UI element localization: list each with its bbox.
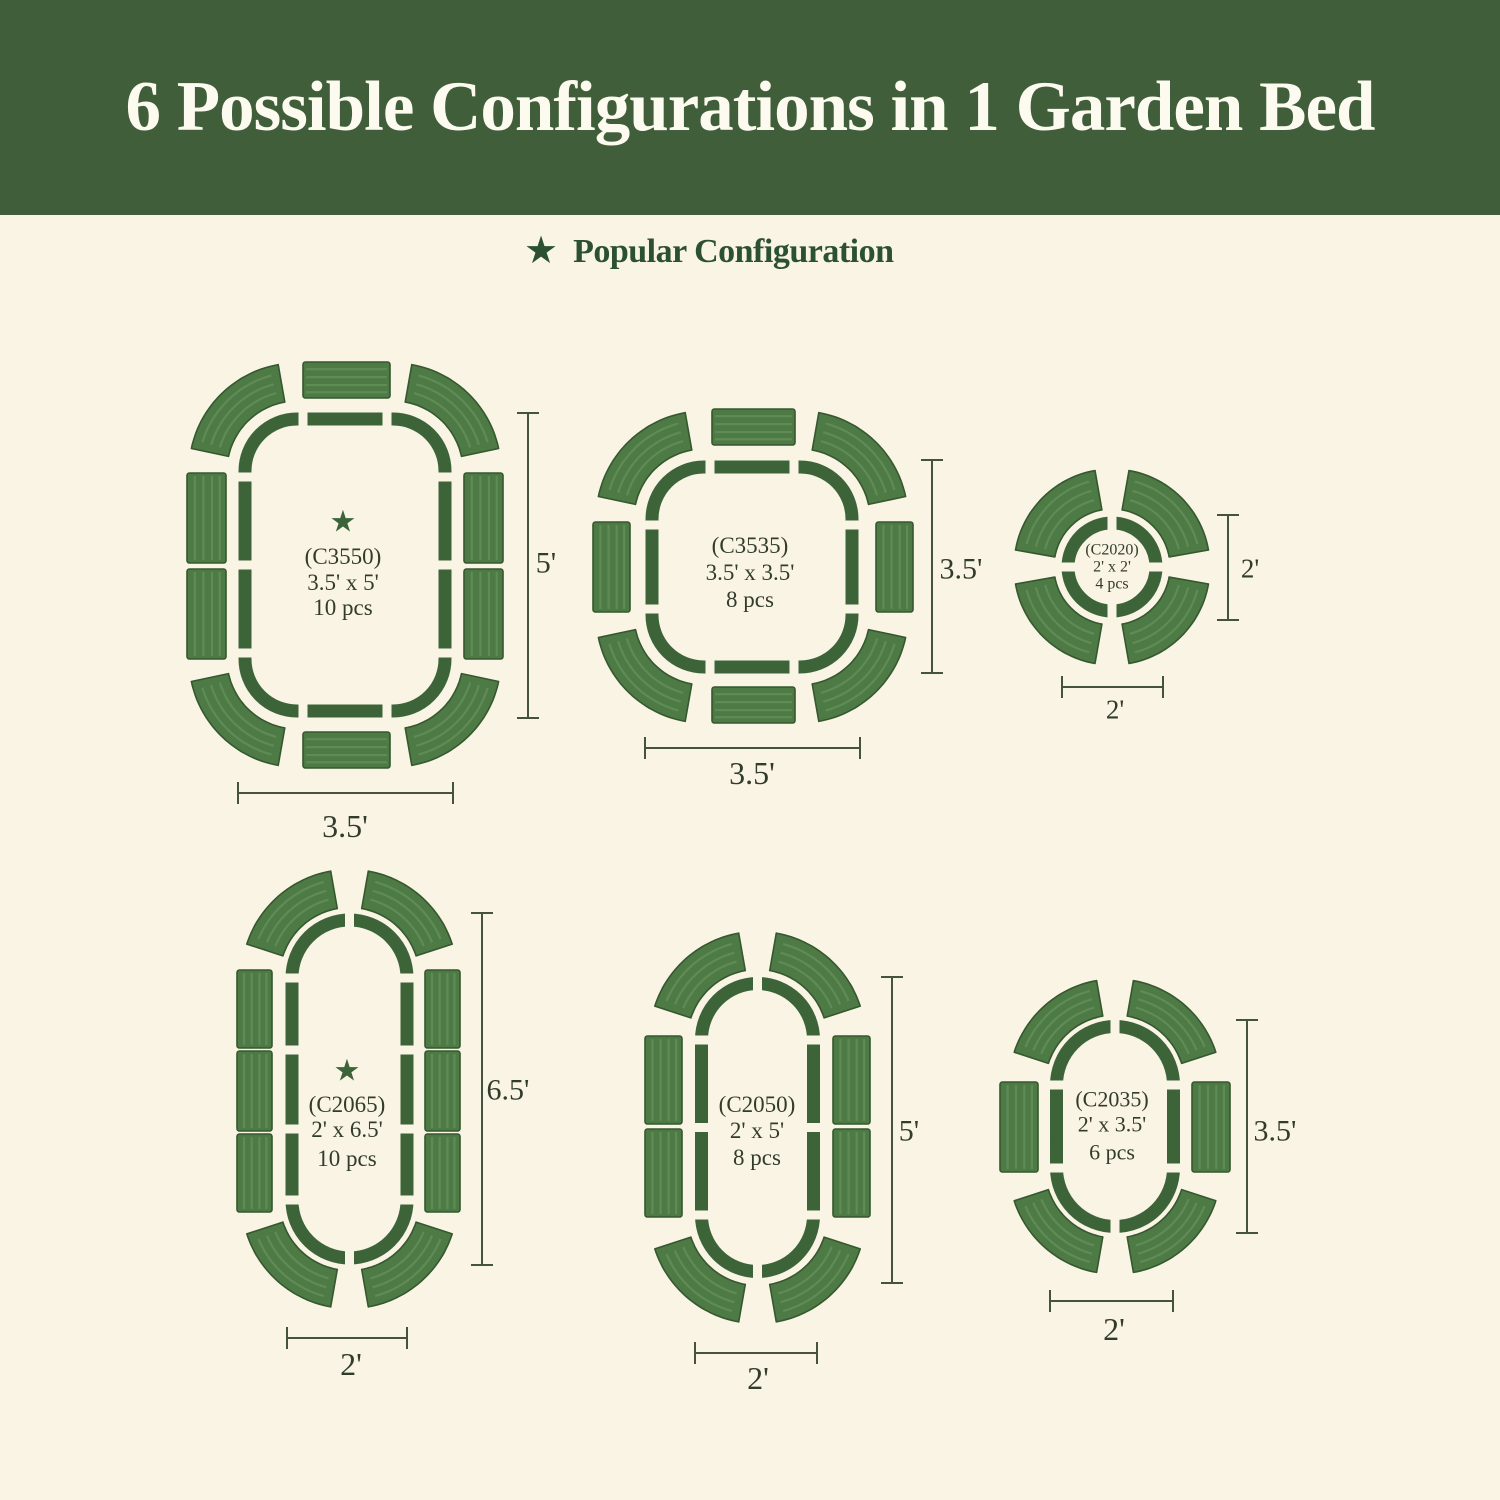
config-size: 2' x 3.5'	[1078, 1112, 1146, 1137]
dimension-label-width: 2'	[340, 1346, 362, 1382]
curved-panel	[405, 674, 498, 766]
straight-panel	[187, 569, 226, 659]
curved-panel	[1127, 981, 1216, 1064]
curved-panel	[598, 630, 691, 722]
config-code: (C3535)	[712, 533, 789, 558]
curved-panel	[247, 871, 337, 956]
curved-panel	[812, 630, 905, 722]
config-size: 2' x 2'	[1093, 559, 1131, 576]
diagram-c2035: 3.5'2'(C2035)2' x 3.5'6 pcs	[975, 965, 1315, 1385]
config-size: 2' x 6.5'	[311, 1117, 383, 1142]
dimension-label-height: 3.5'	[940, 553, 983, 586]
config-code: (C2020)	[1085, 542, 1138, 559]
diagram-c2065: 6.5'2'★(C2065)2' x 6.5'10 pcs	[175, 855, 565, 1435]
curved-panel	[1014, 1190, 1103, 1273]
diagram-c3550: 5'3.5'★(C3550)3.5' x 5'10 pcs	[165, 345, 575, 855]
straight-panel	[425, 970, 460, 1048]
dimension-label-height: 6.5'	[487, 1074, 530, 1107]
straight-panel	[303, 732, 390, 768]
curved-panel	[770, 1237, 861, 1322]
dimension-label-height: 2'	[1241, 553, 1259, 583]
straight-panel	[464, 569, 503, 659]
curved-panel	[812, 413, 905, 505]
config-code: (C2065)	[309, 1092, 386, 1117]
dimension-label-width: 2'	[747, 1360, 769, 1396]
dimension-label-width: 2'	[1106, 694, 1124, 724]
curved-panel	[247, 1222, 337, 1307]
config-size: 2' x 5'	[730, 1118, 784, 1143]
dimension-label-width: 2'	[1103, 1311, 1125, 1347]
straight-panel	[187, 473, 226, 563]
straight-panel	[876, 522, 913, 612]
curved-panel	[405, 365, 498, 457]
straight-panel	[645, 1129, 682, 1217]
diagram-c3535: 3.5'3.5'(C3535)3.5' x 3.5'8 pcs	[575, 395, 995, 815]
straight-panel	[237, 970, 272, 1048]
curved-panel	[362, 1222, 453, 1307]
straight-panel	[425, 1051, 460, 1131]
dimension-label-height: 3.5'	[1254, 1115, 1297, 1148]
straight-panel	[833, 1036, 870, 1124]
straight-panel	[645, 1036, 682, 1124]
curved-panel	[770, 933, 861, 1018]
diagram-c2050: 5'2'(C2050)2' x 5'8 pcs	[615, 920, 955, 1400]
configuration-diagrams: 5'3.5'★(C3550)3.5' x 5'10 pcs3.5'3.5'(C3…	[0, 0, 1500, 1500]
curved-panel	[191, 365, 284, 457]
curved-panel	[598, 413, 691, 505]
config-pcs: 4 pcs	[1095, 576, 1128, 593]
curved-panel	[655, 933, 746, 1018]
straight-panel	[712, 409, 795, 445]
diagram-c2020: 2'2'(C2020)2' x 2'4 pcs	[995, 455, 1295, 755]
dimension-label-width: 3.5'	[322, 808, 368, 844]
straight-panel	[425, 1134, 460, 1212]
curved-panel	[362, 871, 453, 956]
curved-panel	[1016, 577, 1102, 663]
straight-panel	[712, 687, 795, 723]
star-icon: ★	[330, 505, 357, 540]
config-code: (C2050)	[719, 1092, 796, 1117]
curved-panel	[1127, 1190, 1216, 1273]
dimension-label-height: 5'	[536, 547, 556, 580]
config-pcs: 6 pcs	[1089, 1140, 1135, 1165]
straight-panel	[464, 473, 503, 563]
straight-panel	[1000, 1082, 1038, 1172]
curved-panel	[1122, 577, 1208, 663]
curved-panel	[191, 674, 284, 766]
dimension-label-height: 5'	[899, 1115, 919, 1148]
straight-panel	[303, 362, 390, 398]
config-pcs: 10 pcs	[313, 595, 372, 620]
config-size: 3.5' x 5'	[307, 570, 379, 595]
garden-bed-infographic: 6 Possible Configurations in 1 Garden Be…	[0, 0, 1500, 1500]
straight-panel	[1192, 1082, 1230, 1172]
straight-panel	[833, 1129, 870, 1217]
config-pcs: 8 pcs	[726, 587, 774, 612]
curved-panel	[1014, 981, 1103, 1064]
bed-outline	[292, 920, 407, 1258]
config-code: (C2035)	[1075, 1087, 1148, 1112]
config-code: (C3550)	[305, 544, 382, 569]
config-pcs: 10 pcs	[317, 1146, 376, 1171]
dimension-label-width: 3.5'	[729, 755, 775, 791]
straight-panel	[593, 522, 630, 612]
config-size: 3.5' x 3.5'	[706, 560, 795, 585]
curved-panel	[655, 1237, 746, 1322]
straight-panel	[237, 1134, 272, 1212]
star-icon: ★	[334, 1054, 361, 1089]
config-pcs: 8 pcs	[733, 1145, 781, 1170]
straight-panel	[237, 1051, 272, 1131]
